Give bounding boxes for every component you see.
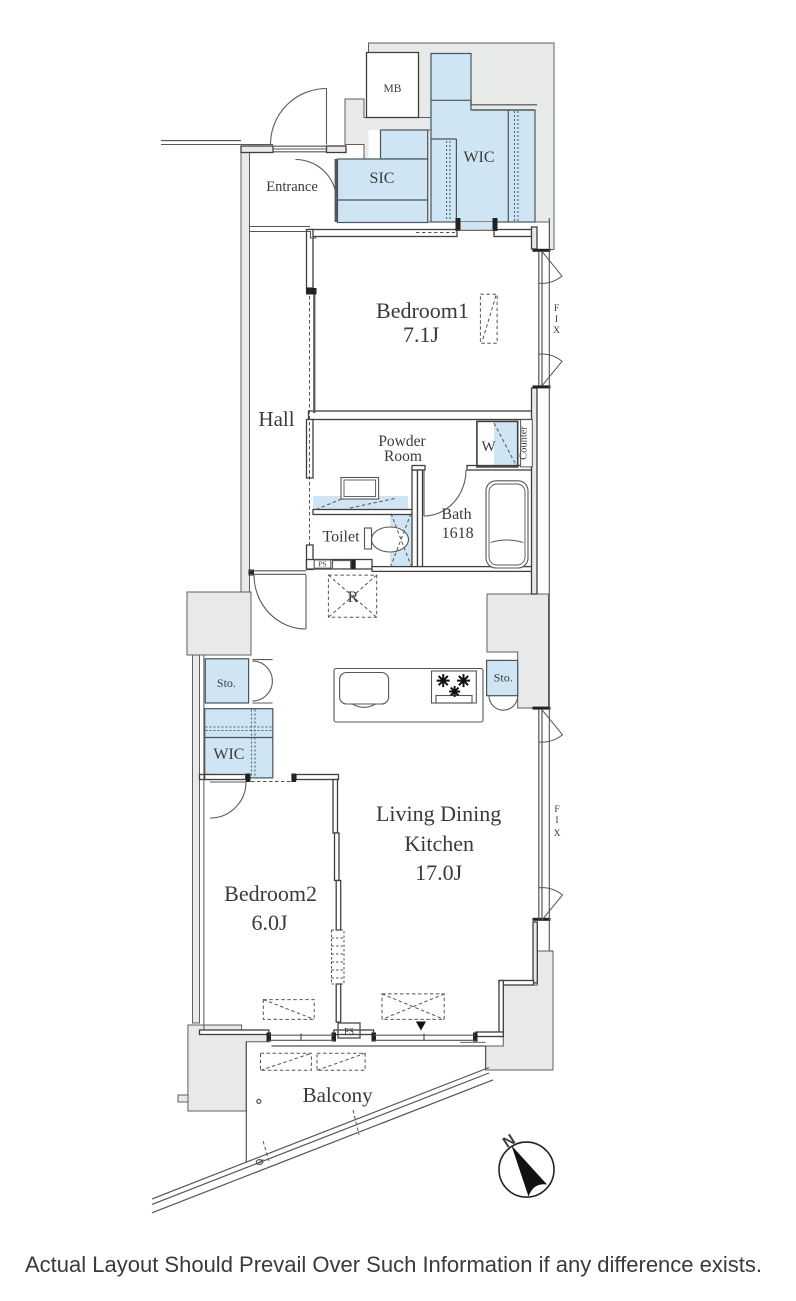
svg-text:I: I [555,315,558,325]
svg-text:Kitchen: Kitchen [404,831,474,856]
svg-text:W: W [482,439,497,455]
svg-text:WIC: WIC [213,746,244,763]
svg-text:MB: MB [384,83,402,95]
svg-text:X: X [554,829,561,839]
svg-text:Actual Layout Should Prevail O: Actual Layout Should Prevail Over Such I… [25,1252,762,1277]
svg-text:F: F [554,805,559,815]
svg-text:R: R [348,589,359,606]
svg-text:I: I [555,816,558,826]
svg-text:SIC: SIC [370,170,395,187]
svg-text:PS: PS [318,560,326,569]
svg-text:17.0J: 17.0J [415,860,463,885]
svg-text:6.0J: 6.0J [251,910,288,935]
svg-text:1618: 1618 [442,525,474,542]
svg-text:Bedroom2: Bedroom2 [224,881,317,906]
svg-text:Toilet: Toilet [322,529,360,546]
svg-text:Entrance: Entrance [266,179,318,195]
svg-text:WIC: WIC [463,149,494,166]
svg-text:Sto.: Sto. [217,676,236,690]
svg-text:PS: PS [344,1027,354,1037]
svg-text:7.1J: 7.1J [403,322,440,347]
svg-text:X: X [553,326,560,336]
svg-text:Counter: Counter [519,426,530,460]
svg-text:Sto.: Sto. [494,671,513,685]
svg-text:Room: Room [384,448,422,465]
svg-text:Balcony: Balcony [303,1083,373,1107]
svg-text:Bedroom1: Bedroom1 [376,298,469,323]
svg-text:F: F [554,304,559,314]
svg-text:Living Dining: Living Dining [376,801,501,826]
svg-text:Hall: Hall [258,407,294,431]
svg-text:Bath: Bath [441,506,471,523]
